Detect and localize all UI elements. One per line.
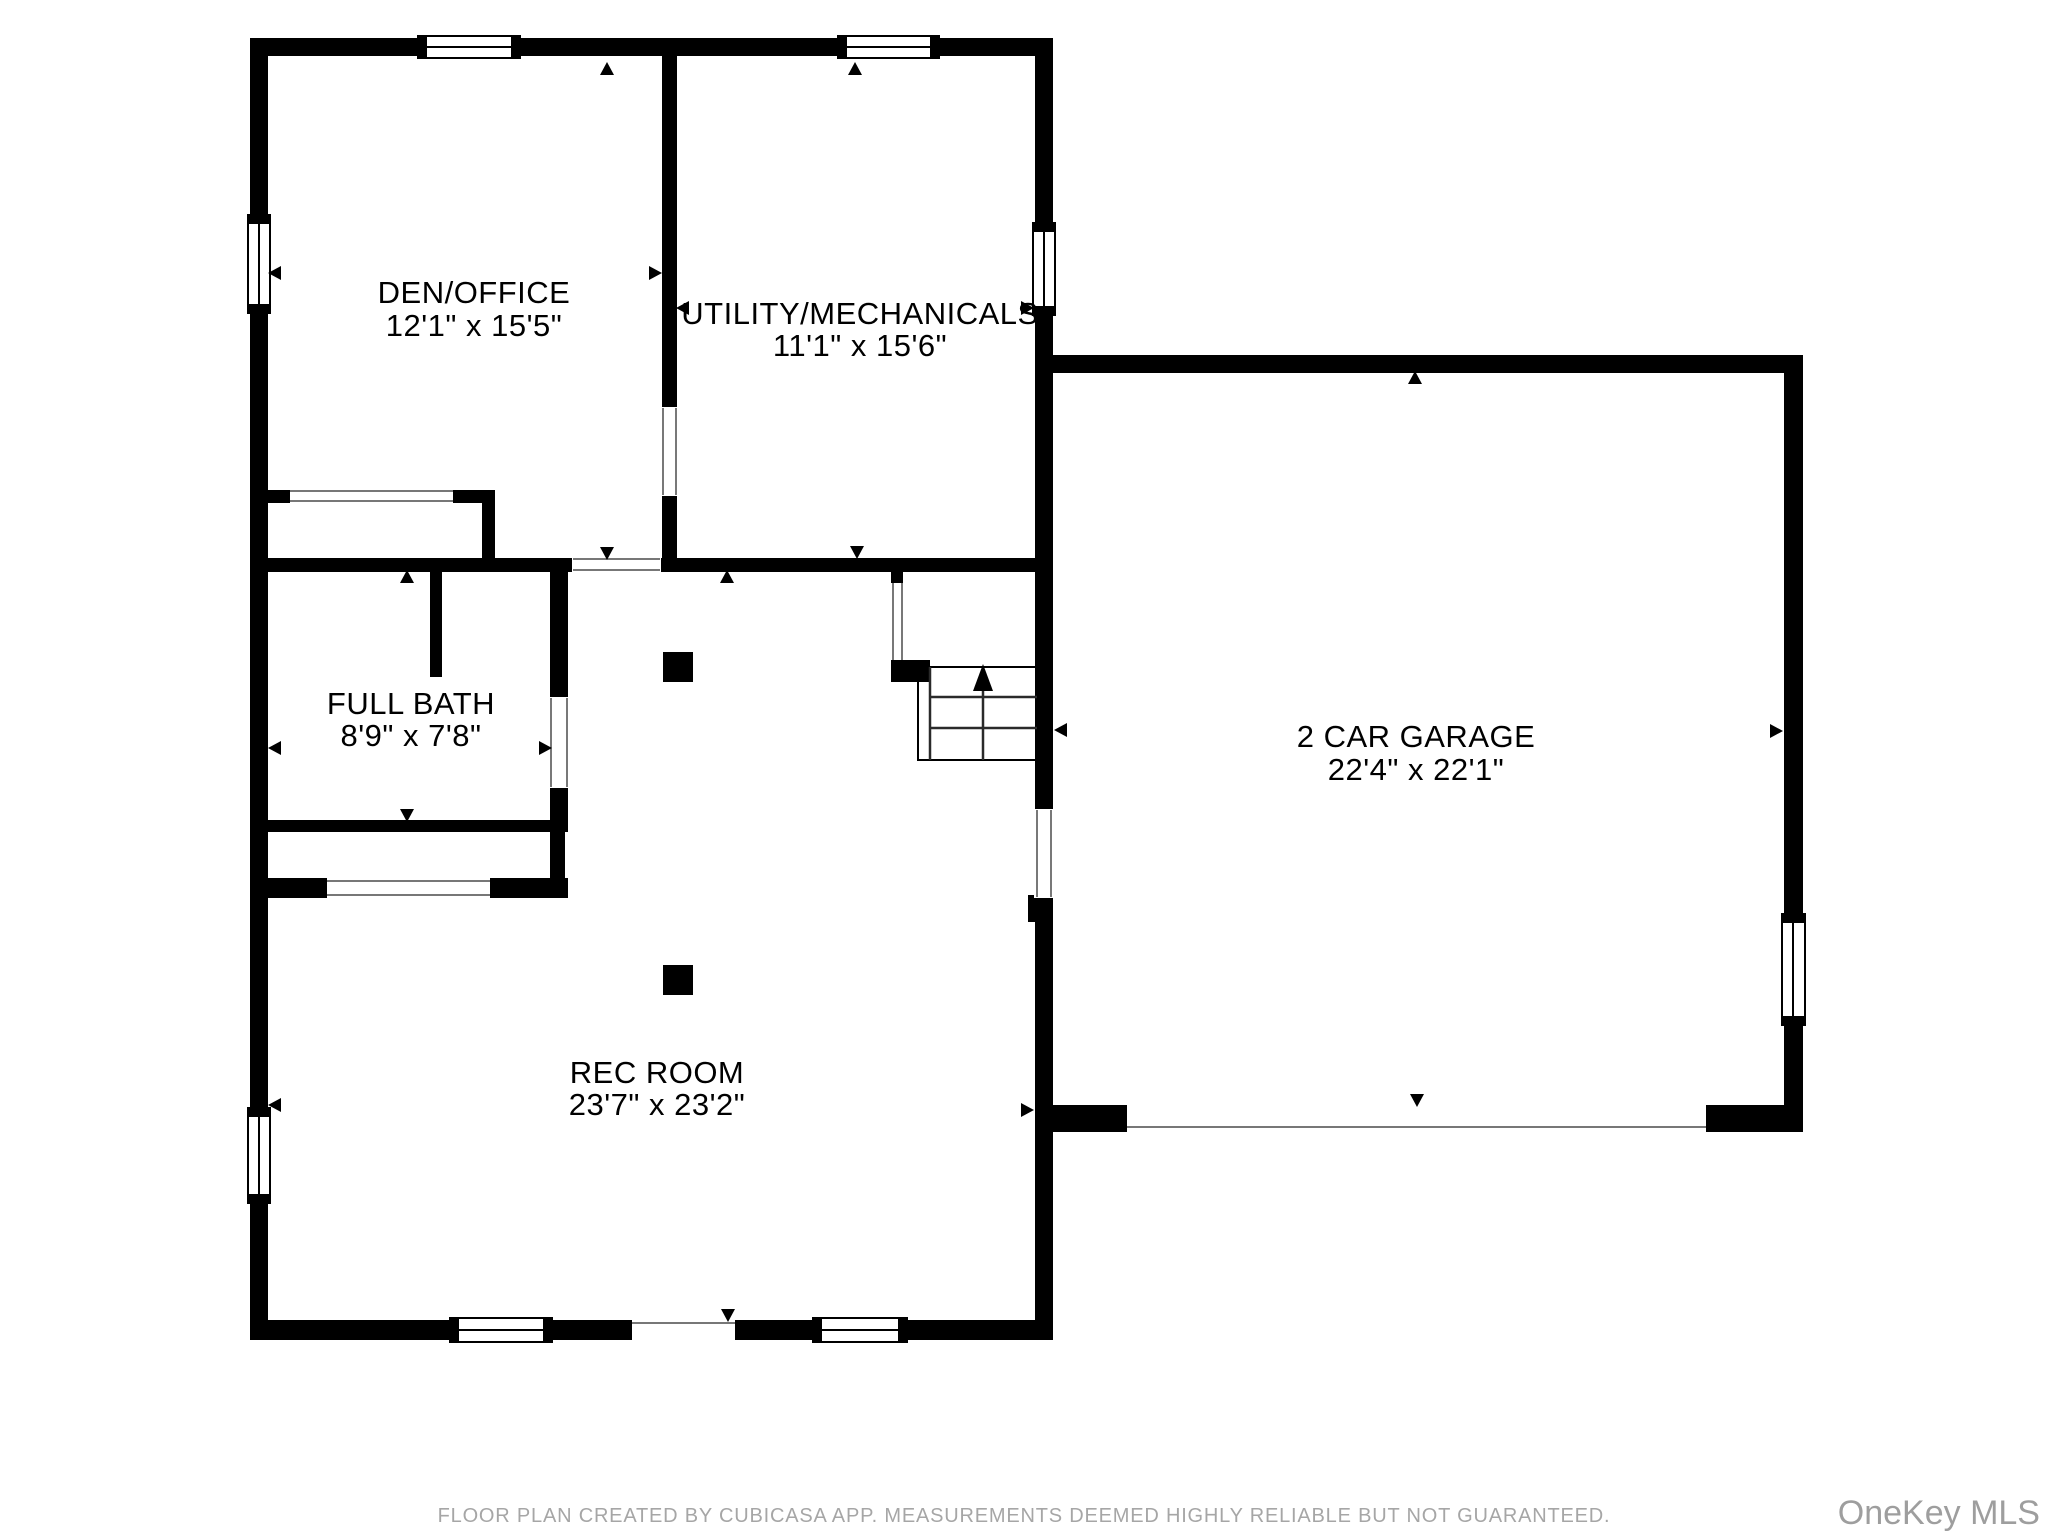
- window-end-cap: [248, 1194, 270, 1203]
- window-end-cap: [511, 36, 520, 58]
- window-den-left: [248, 215, 270, 313]
- window-end-cap: [248, 1108, 270, 1117]
- window-end-cap: [418, 36, 427, 58]
- window-end-cap: [543, 1318, 552, 1342]
- room-name: FULL BATH: [327, 686, 495, 721]
- window-rec-room-bottom-left: [450, 1318, 552, 1342]
- room-label-full-bath: FULL BATH 8'9" x 7'8": [327, 686, 495, 753]
- room-name: REC ROOM: [570, 1055, 745, 1090]
- room-dimensions: 8'9" x 7'8": [340, 718, 481, 753]
- room-dimensions: 12'1" x 15'5": [386, 308, 563, 343]
- window-end-cap: [930, 36, 939, 58]
- window-end-cap: [450, 1318, 459, 1342]
- support-column: [663, 965, 693, 995]
- wall-bath-bottom: [250, 820, 568, 832]
- room-dimensions: 11'1" x 15'6": [773, 328, 947, 363]
- passage-den-to-rec-room: [572, 557, 661, 573]
- room-label-two-car-garage: 2 CAR GARAGE 22'4" x 22'1": [1297, 719, 1536, 787]
- wall-stair-corner-piece: [891, 660, 930, 682]
- window-end-cap: [898, 1318, 907, 1342]
- door-garage-to-rec-room: [1034, 809, 1054, 898]
- support-column: [663, 652, 693, 682]
- wall-east-door-jamb-stub: [1028, 895, 1037, 922]
- window-end-cap: [1782, 1016, 1805, 1025]
- wall-stair-landing-stub: [891, 572, 903, 583]
- door-gap: [549, 697, 569, 788]
- footer-disclaimer: FLOOR PLAN CREATED BY CUBICASA APP. MEAS…: [438, 1505, 1611, 1527]
- wall-garage-bottom-right: [1706, 1105, 1803, 1132]
- closet1-sliding-door: [290, 489, 453, 504]
- door-den-to-utility: [661, 407, 678, 496]
- room-name: DEN/OFFICE: [378, 275, 571, 310]
- window-garage-right: [1782, 914, 1805, 1025]
- room-label-den-office: DEN/OFFICE 12'1" x 15'5": [378, 275, 571, 343]
- door-full-bath: [549, 697, 569, 788]
- window-rec-room-left: [248, 1108, 270, 1203]
- window-rec-room-bottom-right: [813, 1318, 907, 1342]
- wall-garage-bottom-left: [1053, 1105, 1127, 1132]
- window-utility-top: [838, 36, 939, 58]
- room-name: UTILITY/MECHANICALS: [681, 296, 1038, 331]
- window-end-cap: [1782, 914, 1805, 923]
- wall-garage-top: [1053, 355, 1803, 373]
- door-rec-room-exterior: [632, 1319, 735, 1341]
- window-end-cap: [838, 36, 847, 58]
- room-label-rec-room: REC ROOM 23'7" x 23'2": [569, 1055, 746, 1122]
- window-end-cap: [813, 1318, 822, 1342]
- wall-closet1-right: [482, 490, 495, 563]
- window-den-top: [418, 36, 520, 58]
- window-end-cap: [1033, 223, 1055, 232]
- floor-plan-canvas: DEN/OFFICE 12'1" x 15'5" UTILITY/MECHANI…: [0, 0, 2048, 1536]
- room-dimensions: 22'4" x 22'1": [1328, 752, 1505, 787]
- room-dimensions: 23'7" x 23'2": [569, 1087, 746, 1122]
- watermark: OneKey MLS: [1838, 1494, 2040, 1532]
- page-background: [0, 0, 2048, 1536]
- room-name: 2 CAR GARAGE: [1297, 719, 1536, 754]
- window-end-cap: [248, 304, 270, 313]
- window-end-cap: [248, 215, 270, 224]
- wall-closet2-bottom-right: [490, 878, 568, 898]
- wall-closet2-bottom-left: [250, 878, 327, 898]
- wall-bath-partition-stub: [430, 572, 442, 677]
